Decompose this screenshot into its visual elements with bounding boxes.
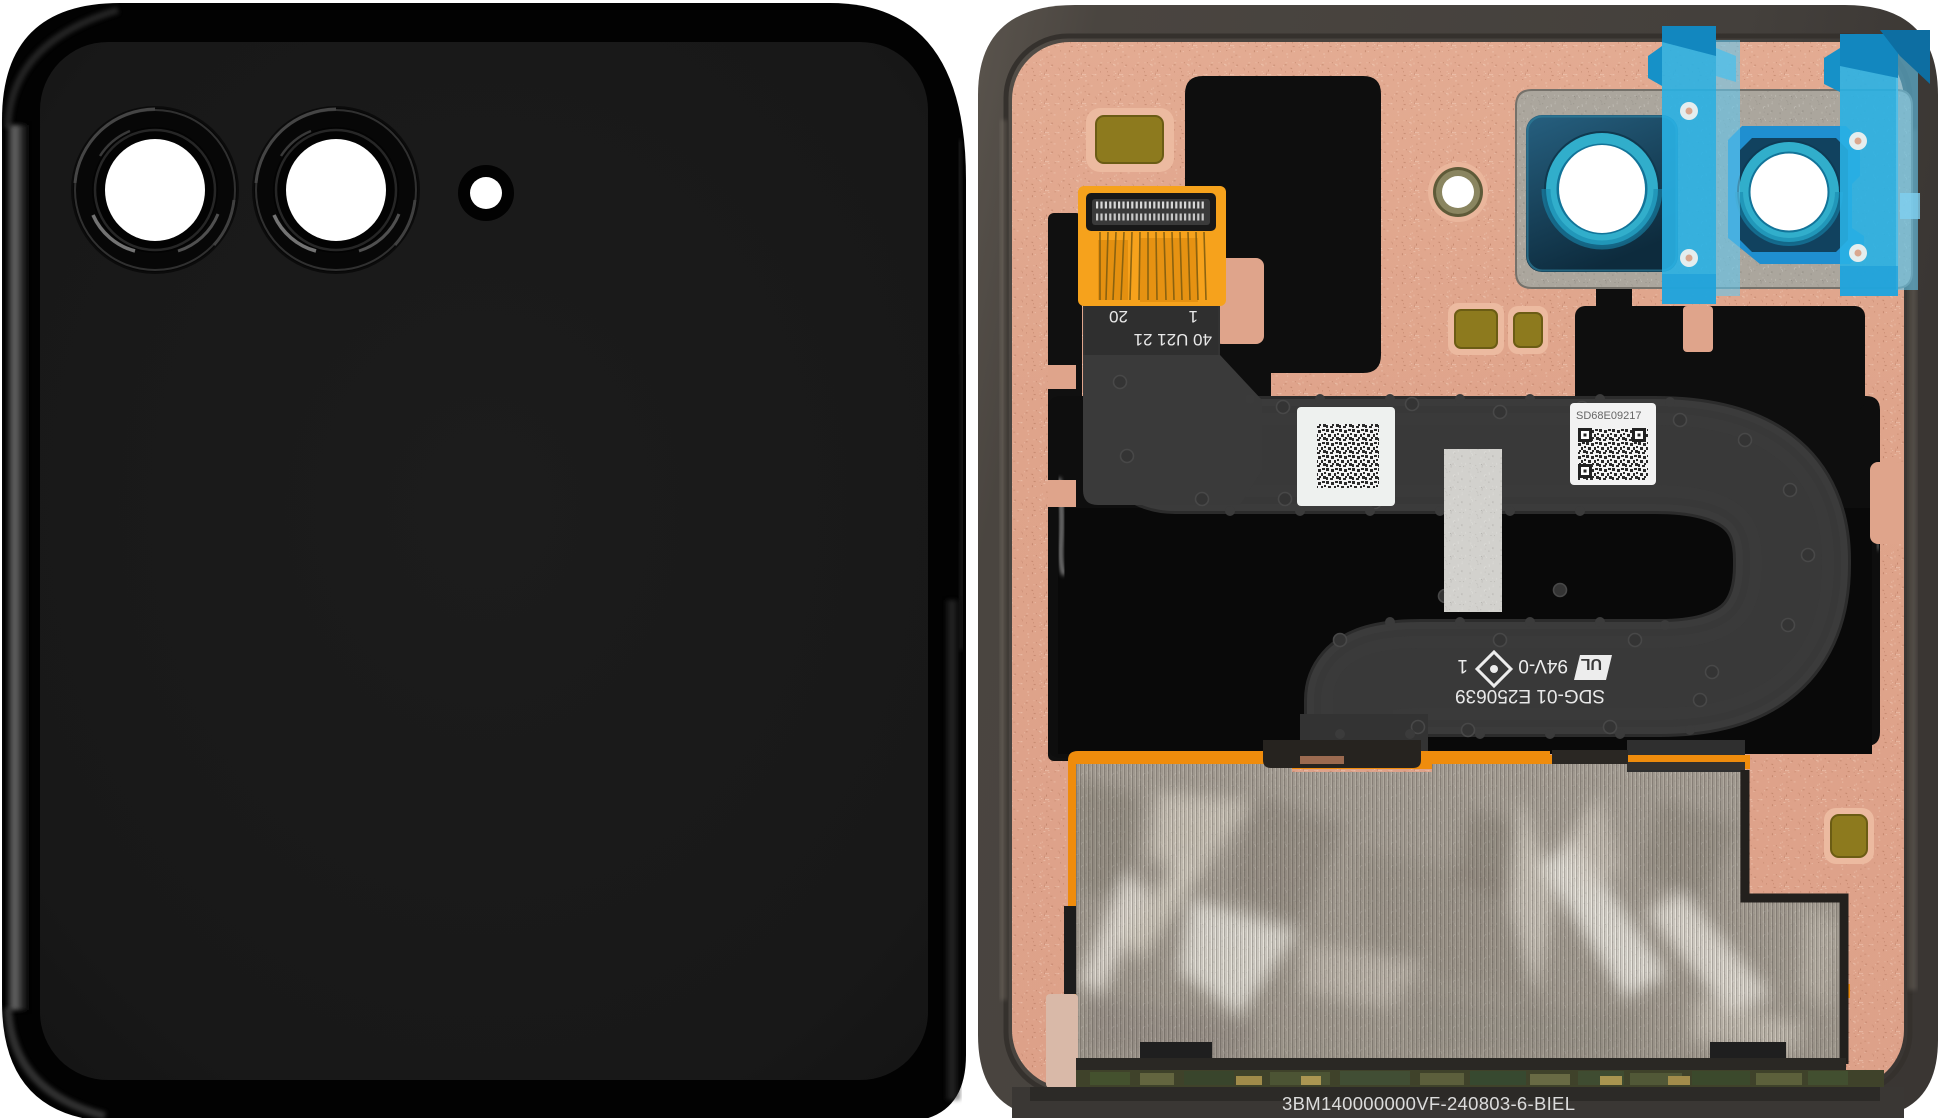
svg-text:1: 1 — [1189, 307, 1198, 326]
svg-text:SDG-01 E250639: SDG-01 E250639 — [1455, 685, 1605, 706]
svg-text:UL: UL — [1580, 655, 1602, 672]
svg-text:SD68E09217: SD68E09217 — [1576, 410, 1641, 422]
svg-text:20: 20 — [1109, 307, 1128, 326]
svg-text:3BM140000000VF-240803-6-BIEL: 3BM140000000VF-240803-6-BIEL — [1282, 1093, 1575, 1114]
svg-text:40 U21 21: 40 U21 21 — [1134, 330, 1212, 349]
svg-text:94V-0: 94V-0 — [1518, 655, 1568, 676]
svg-text:1: 1 — [1457, 655, 1468, 676]
